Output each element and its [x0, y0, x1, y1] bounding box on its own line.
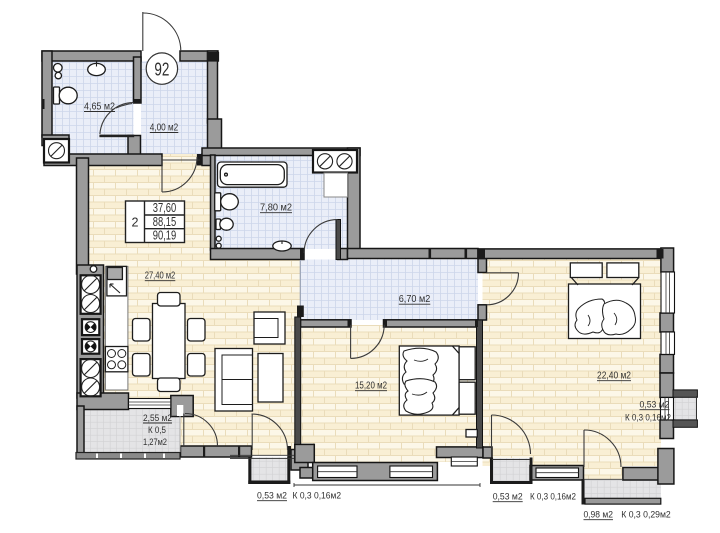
svg-text:К 0,3 0,29м2: К 0,3 0,29м2 [621, 510, 671, 521]
svg-text:88,15: 88,15 [153, 215, 177, 229]
svg-text:2,55 м2: 2,55 м2 [143, 413, 172, 424]
svg-text:7,80 м2: 7,80 м2 [260, 202, 292, 214]
svg-text:К 0,5: К 0,5 [148, 425, 166, 436]
svg-text:22,40 м2: 22,40 м2 [597, 370, 631, 382]
svg-text:0,53 м2: 0,53 м2 [257, 491, 287, 502]
svg-text:0,53 м2: 0,53 м2 [640, 400, 670, 411]
svg-text:6,70 м2: 6,70 м2 [399, 293, 431, 305]
svg-text:27,40 м2: 27,40 м2 [145, 270, 176, 282]
svg-text:4,00 м2: 4,00 м2 [150, 122, 179, 134]
svg-text:90,19: 90,19 [153, 229, 177, 243]
svg-text:К 0,3 0,16м2: К 0,3 0,16м2 [530, 492, 576, 503]
svg-text:15,20 м2: 15,20 м2 [355, 380, 387, 392]
svg-text:0,98 м2: 0,98 м2 [583, 510, 613, 521]
svg-text:92: 92 [154, 58, 169, 79]
svg-text:37,60: 37,60 [153, 201, 177, 215]
svg-text:0,53 м2: 0,53 м2 [493, 492, 523, 503]
svg-text:1,27м2: 1,27м2 [143, 437, 167, 448]
svg-text:К 0,3 0,16м2: К 0,3 0,16м2 [625, 413, 671, 424]
svg-text:К 0,3 0,16м2: К 0,3 0,16м2 [293, 491, 342, 502]
svg-text:2: 2 [132, 216, 139, 230]
svg-text:4,65 м2: 4,65 м2 [84, 101, 115, 113]
